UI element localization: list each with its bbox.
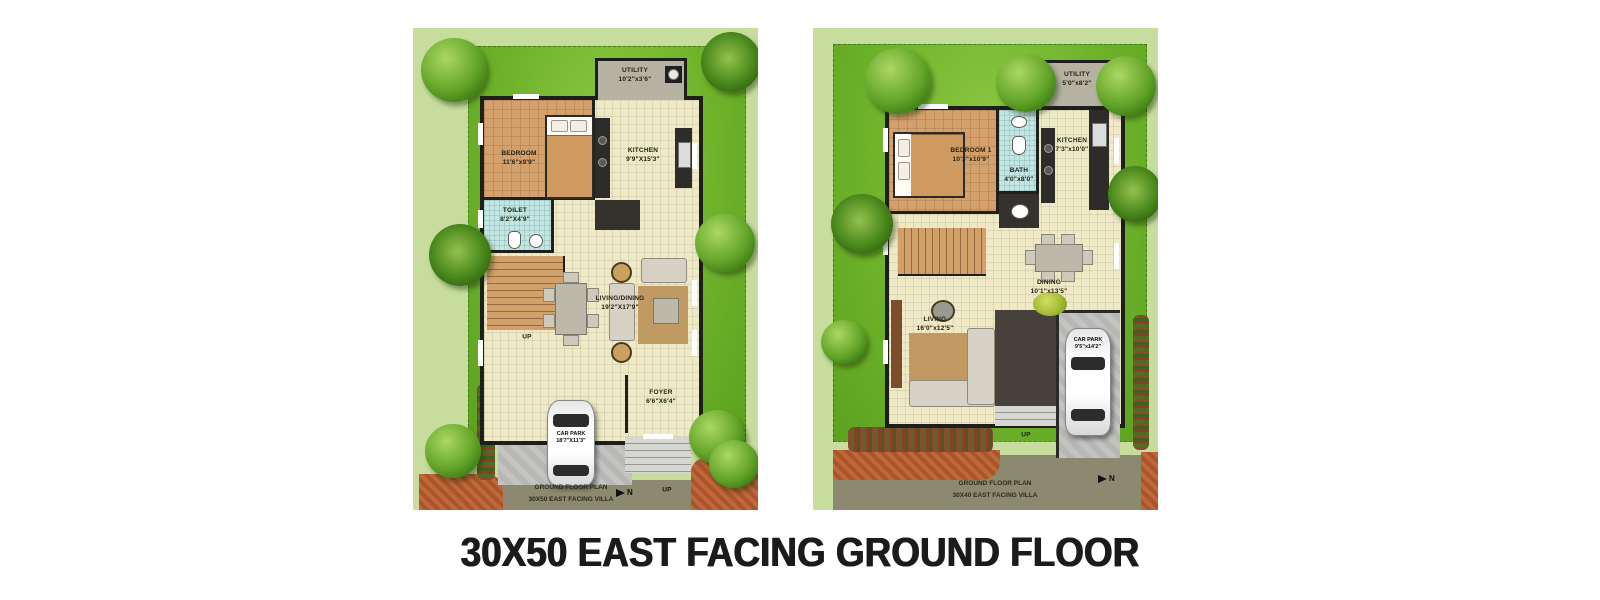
window-marker <box>478 210 483 228</box>
car-icon: CAR PARK 18'7"X11'3" <box>547 400 595 486</box>
caption-line1: GROUND FLOOR PLAN <box>529 482 614 494</box>
sofa-icon <box>967 328 995 405</box>
window-marker <box>883 128 888 152</box>
sofa-icon <box>641 258 687 283</box>
room-name: BEDROOM 1 <box>950 147 991 154</box>
car-icon: CAR PARK 9'5"x14'2" <box>1065 328 1111 436</box>
caption-line1: GROUND FLOOR PLAN <box>953 478 1038 490</box>
up-text: UP <box>662 487 671 494</box>
room-dims: 7'3"x10'0" <box>1056 146 1089 153</box>
room-dims: 9'5"x14'2" <box>1075 344 1101 350</box>
bush-icon <box>709 440 758 488</box>
toilet-label: TOILET 8'2"X4'9" <box>500 207 530 225</box>
room-dims: 18'7"X11'3" <box>556 438 586 444</box>
palm-tree-icon <box>701 32 758 92</box>
tree-icon <box>865 48 931 114</box>
washbasin-icon <box>529 234 543 248</box>
rug-icon <box>909 333 967 383</box>
stove-icon <box>598 136 607 145</box>
bush-icon <box>425 424 481 478</box>
dining-table-icon <box>555 283 587 335</box>
caption-line2: 30X40 EAST FACING VILLA <box>953 490 1038 502</box>
chair-icon <box>1061 234 1075 245</box>
north-arrow-icon <box>616 489 625 497</box>
living-label: LIVING 16'0"x12'5" <box>917 316 954 334</box>
window-marker <box>692 143 697 169</box>
toilet-wc-icon <box>1012 136 1026 155</box>
washbasin-icon <box>1011 116 1027 128</box>
page-title: 30X50 EAST FACING GROUND FLOOR <box>80 529 1520 576</box>
room-dims: 8'2"X4'9" <box>500 216 530 223</box>
tree-icon <box>695 214 755 272</box>
room-dims: 6'6"X6'4" <box>646 398 676 405</box>
side-table-icon <box>611 262 632 283</box>
window-marker <box>883 340 888 364</box>
up-text: UP <box>522 334 531 341</box>
room-dims: 10'3"x10'9" <box>953 156 990 163</box>
room-dims: 16'0"x12'5" <box>917 325 954 332</box>
foyer-label: FOYER 6'6"X6'4" <box>646 389 676 407</box>
kitchen-counter <box>675 128 692 188</box>
bath-label: BATH 4'0"x8'0" <box>1004 167 1033 185</box>
side-table-icon <box>611 342 632 363</box>
north-text: N <box>627 488 633 497</box>
porch-steps <box>625 437 691 473</box>
room-name: UTILITY <box>622 67 648 74</box>
car-park-label: CAR PARK 18'7"X11'3" <box>548 431 594 445</box>
planter-bed <box>833 450 1000 480</box>
chair-icon <box>1082 250 1093 265</box>
blanket-icon <box>911 134 963 196</box>
chair-icon <box>587 314 599 328</box>
dining-set <box>1023 232 1093 282</box>
bed-icon <box>545 115 594 199</box>
chair-icon <box>543 314 555 328</box>
stove-icon <box>598 158 607 167</box>
rear-window-icon <box>553 465 589 476</box>
window-marker <box>1114 138 1119 164</box>
hedge-icon <box>1133 315 1149 450</box>
window-marker <box>513 94 539 99</box>
living-dining-label: LIVING/DINING 19'2"X17'9" <box>596 295 645 313</box>
room-name: LIVING/DINING <box>596 295 645 302</box>
bedroom-label: BEDROOM 11'6"x9'9" <box>501 150 536 168</box>
sink-icon <box>1092 123 1107 147</box>
chair-icon <box>563 272 579 283</box>
kitchen-counter <box>1041 128 1055 203</box>
porch-up-label: UP <box>662 487 671 496</box>
chair-icon <box>1041 234 1055 245</box>
washing-machine-icon <box>665 66 682 83</box>
tree-icon <box>1096 56 1156 116</box>
rear-window-icon <box>1071 409 1105 421</box>
dining-label: DINING 10'1"x13'5" <box>1031 279 1068 297</box>
porch <box>995 310 1056 406</box>
room-name: UTILITY <box>1064 71 1090 78</box>
utility-label: UTILITY 5'0"x8'2" <box>1062 71 1091 89</box>
palm-tree-icon <box>429 224 491 286</box>
car-park-label: CAR PARK 9'5"x14'2" <box>1066 337 1110 351</box>
room-dims: 11'6"x9'9" <box>503 159 536 166</box>
planter-bed <box>1141 452 1158 510</box>
pillow-icon <box>570 120 587 132</box>
window-marker <box>918 104 948 109</box>
porch-steps <box>995 406 1056 426</box>
caption-line2: 30X50 EAST FACING VILLA <box>529 494 614 506</box>
room-name: CAR PARK <box>1074 337 1103 343</box>
north-arrow-icon <box>1098 475 1107 483</box>
pillow-icon <box>898 139 910 157</box>
room-name: FOYER <box>649 389 672 396</box>
window-marker <box>1114 243 1119 269</box>
dining-table-icon <box>1035 244 1083 272</box>
pillow-icon <box>898 162 910 180</box>
flower-bed-icon <box>848 427 993 452</box>
stove-icon <box>1044 144 1053 153</box>
room-name: TOILET <box>503 207 527 214</box>
tv-unit-icon <box>891 300 902 388</box>
room-name: DINING <box>1037 279 1061 286</box>
kitchen-counter <box>595 118 610 198</box>
room-dims: 19'2"X17'9" <box>601 304 638 311</box>
floor-plan-left-30x50: UTILITY 10'2"x3'6" BEDROOM 11'6"x9'9" KI… <box>413 28 758 510</box>
bush-icon <box>821 320 867 364</box>
room-dims: 10'1"x13'5" <box>1031 288 1068 295</box>
door-opening <box>643 434 673 439</box>
chair-icon <box>563 335 579 346</box>
chair-icon <box>543 288 555 302</box>
washbasin-icon <box>1011 204 1029 219</box>
dining-set <box>541 272 599 344</box>
room-dims: 4'0"x8'0" <box>1004 176 1033 183</box>
stairs-up-label: UP <box>522 334 531 343</box>
room-name: LIVING <box>924 316 947 323</box>
sink-icon <box>678 142 691 168</box>
room-dims: 10'2"x3'6" <box>619 76 652 83</box>
north-text: N <box>1109 474 1115 483</box>
kitchen-label: KITCHEN 9'9"X15'3" <box>626 147 660 165</box>
room-name: KITCHEN <box>1057 137 1087 144</box>
plan-caption: GROUND FLOOR PLAN 30X40 EAST FACING VILL… <box>953 478 1038 501</box>
room-name: KITCHEN <box>628 147 658 154</box>
chair-icon <box>1025 250 1036 265</box>
coffee-table-icon <box>653 298 679 324</box>
kitchen-label: KITCHEN 7'3"x10'0" <box>1056 137 1089 155</box>
floor-plan-right-30x40: UTILITY 5'0"x8'2" BEDROOM 1 10'3"x10'9" … <box>813 28 1158 510</box>
room-name: BATH <box>1010 167 1028 174</box>
room-name: CAR PARK <box>557 431 586 437</box>
stove-icon <box>1044 166 1053 175</box>
window-marker <box>478 123 483 145</box>
north-indicator: N <box>616 488 633 497</box>
tree-icon <box>996 54 1056 112</box>
room-dims: 5'0"x8'2" <box>1062 80 1091 87</box>
pillow-icon <box>551 120 568 132</box>
up-text: UP <box>1021 432 1030 439</box>
toilet-wc-icon <box>508 231 521 249</box>
tree-icon <box>421 38 487 102</box>
room-dims: 9'9"X15'3" <box>626 156 660 163</box>
palm-tree-icon <box>1108 166 1158 222</box>
window-marker <box>478 340 483 366</box>
utility-label: UTILITY 10'2"x3'6" <box>619 67 652 85</box>
window-marker <box>692 280 697 306</box>
staircase <box>898 228 986 276</box>
porch-up-label: UP <box>1021 432 1030 441</box>
kitchen-counter <box>1089 110 1109 210</box>
room-name: BEDROOM <box>501 150 536 157</box>
bed-icon <box>893 132 965 198</box>
plan-caption: GROUND FLOOR PLAN 30X50 EAST FACING VILL… <box>529 482 614 505</box>
palm-tree-icon <box>831 194 893 254</box>
window-marker <box>692 330 697 356</box>
windshield-icon <box>1071 357 1105 370</box>
blanket-icon <box>547 135 592 197</box>
windshield-icon <box>553 414 589 427</box>
wall-block <box>595 200 640 230</box>
north-indicator: N <box>1098 474 1115 483</box>
bedroom1-label: BEDROOM 1 10'3"x10'9" <box>950 147 991 165</box>
